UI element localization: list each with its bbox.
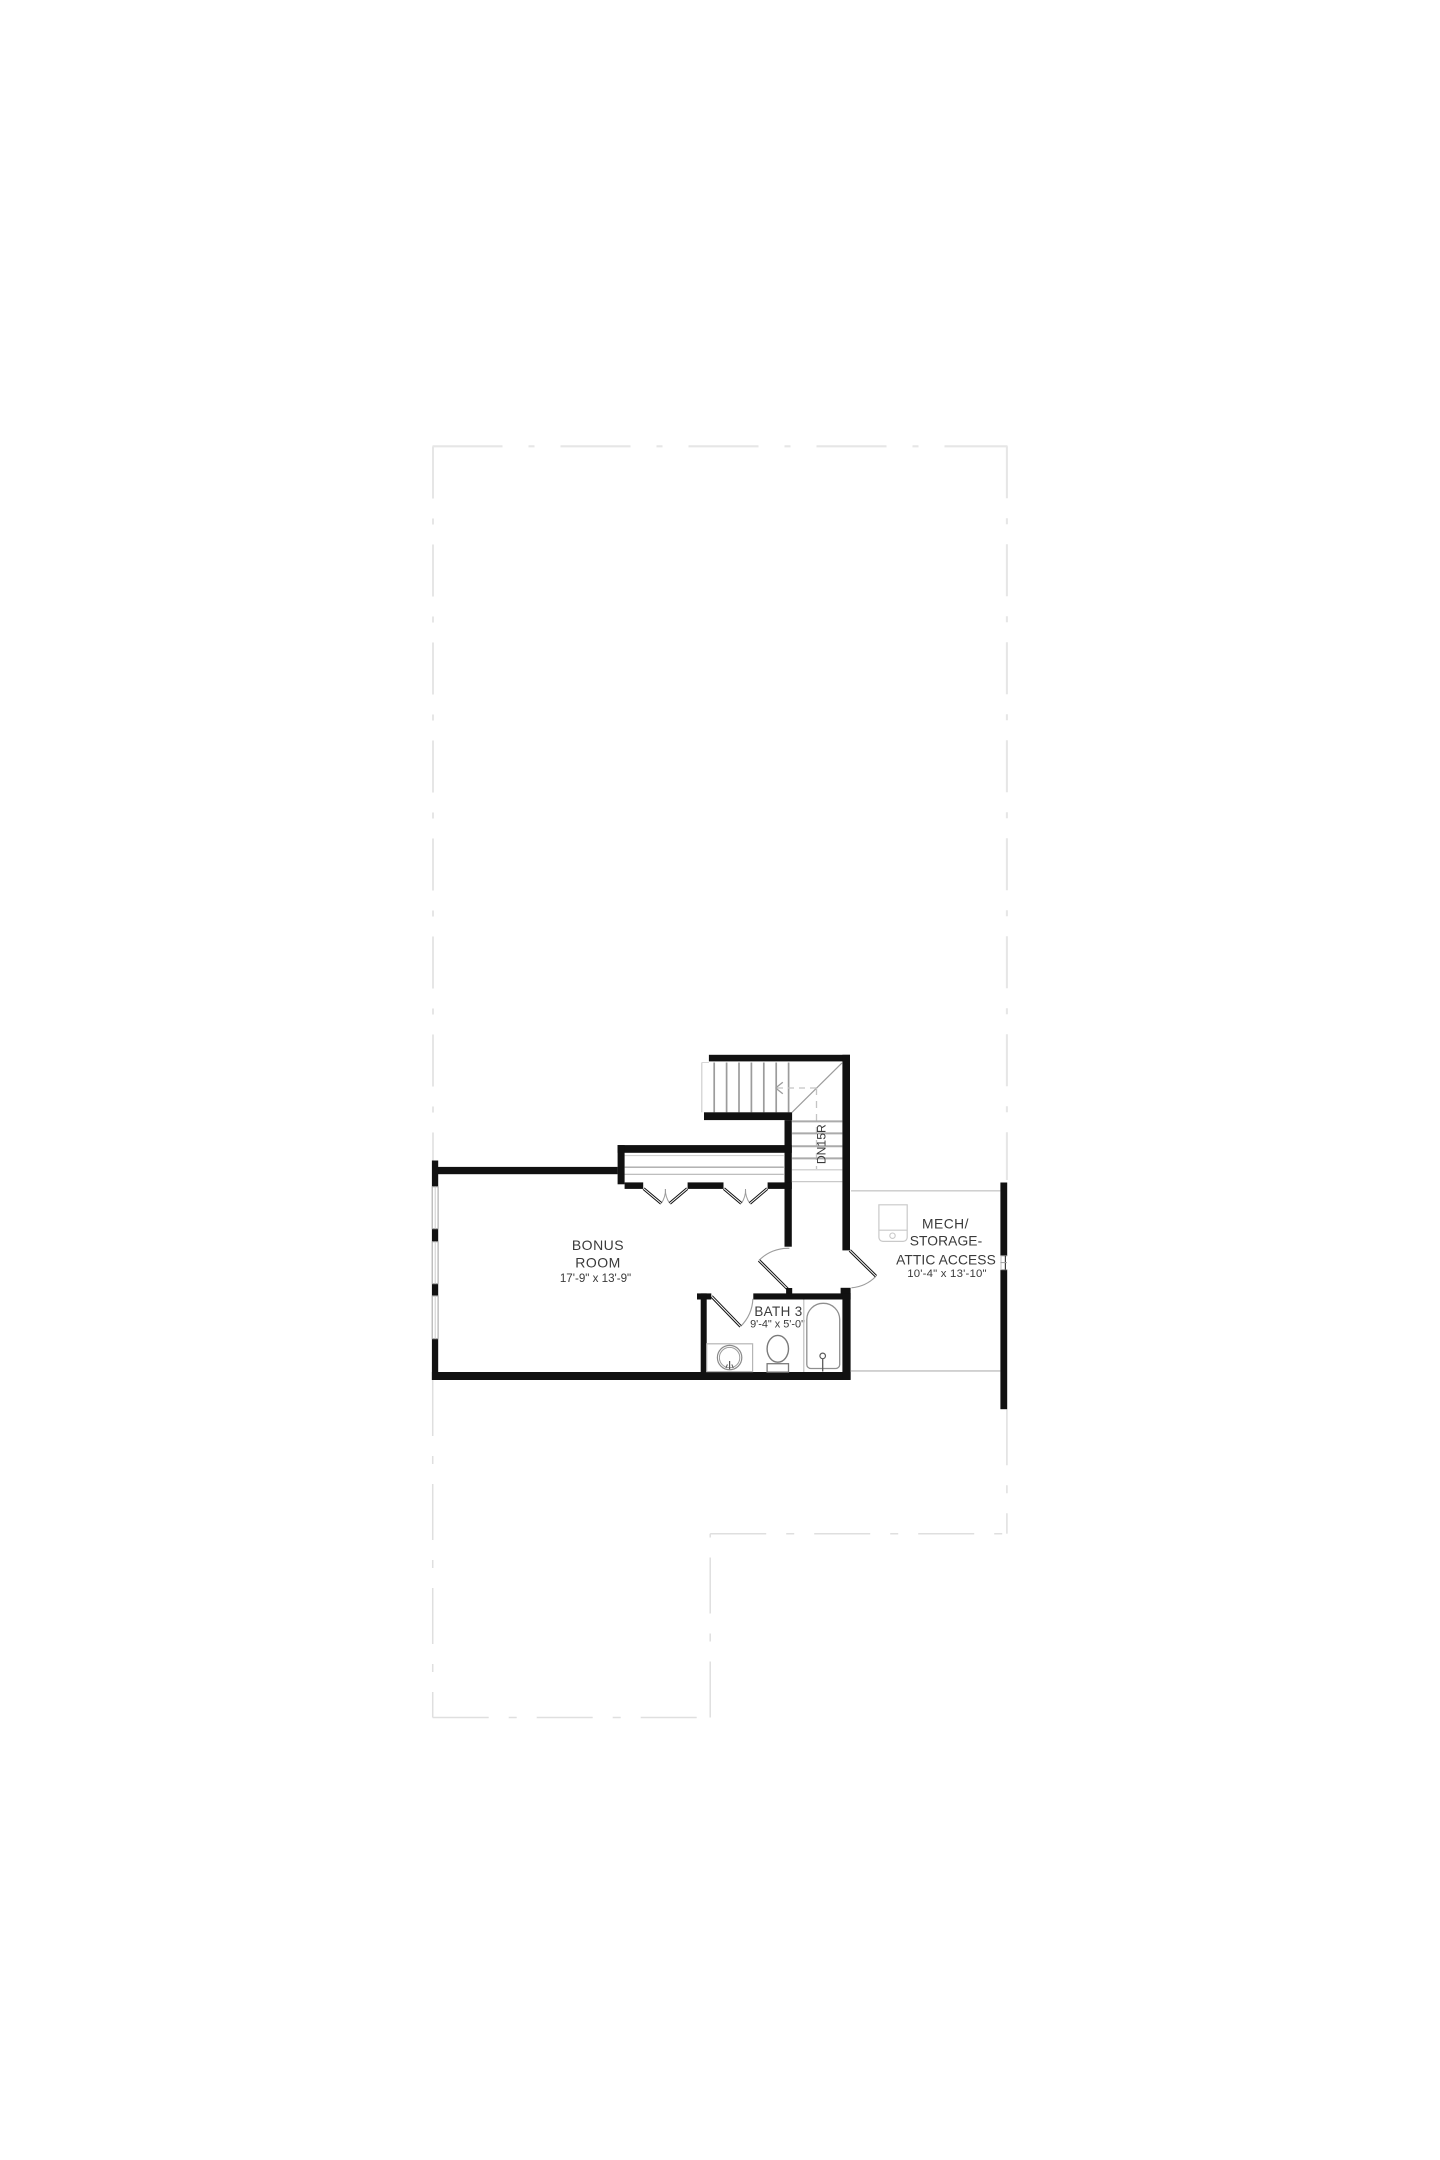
svg-text:STORAGE-: STORAGE- <box>910 1234 983 1249</box>
svg-text:ATTIC ACCESS: ATTIC ACCESS <box>896 1253 996 1268</box>
svg-text:ROOM: ROOM <box>575 1254 621 1270</box>
svg-text:10'-4" x 13'-10": 10'-4" x 13'-10" <box>907 1268 987 1280</box>
svg-text:DN15R: DN15R <box>814 1124 828 1164</box>
svg-text:BONUS: BONUS <box>572 1237 624 1253</box>
svg-text:MECH/: MECH/ <box>922 1217 969 1232</box>
svg-text:17'-9" x 13'-9": 17'-9" x 13'-9" <box>560 1272 631 1285</box>
svg-text:9'-4" x 5'-0": 9'-4" x 5'-0" <box>750 1318 805 1330</box>
svg-text:BATH 3: BATH 3 <box>754 1304 802 1319</box>
